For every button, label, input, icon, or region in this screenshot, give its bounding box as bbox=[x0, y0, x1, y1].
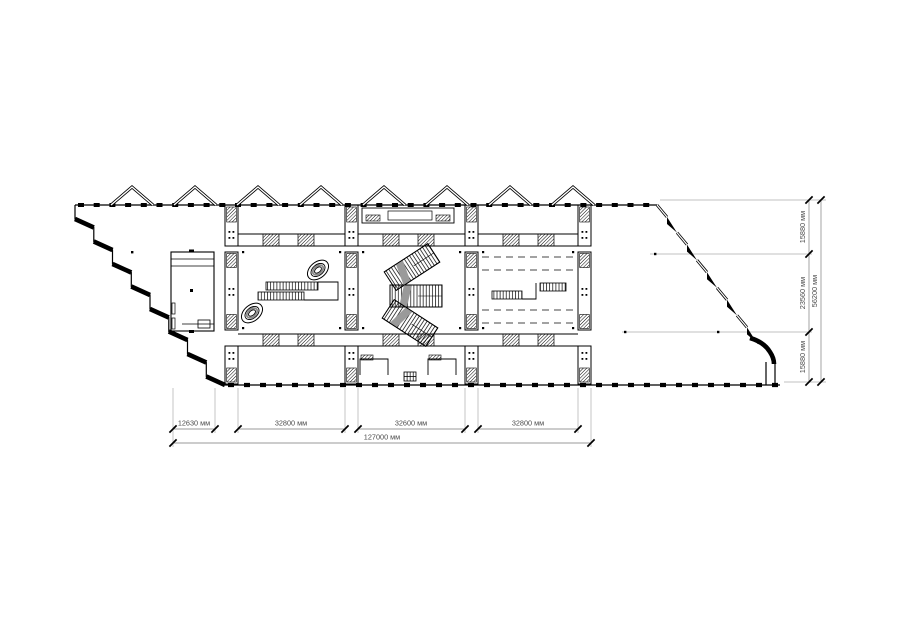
upper-gallery-wall bbox=[238, 234, 578, 246]
dim-bottom-4-label: 32800 мм bbox=[512, 419, 544, 428]
dim-bottom-3-label: 32600 мм bbox=[395, 419, 427, 428]
drawing-canvas: 12630 мм 32800 мм 32600 мм 32800 мм 1270… bbox=[0, 0, 900, 633]
dim-bottom-2-label: 32800 мм bbox=[275, 419, 307, 428]
escalator-upper bbox=[384, 244, 440, 291]
dim-bottom-1-label: 12630 мм bbox=[178, 419, 210, 428]
dim-right-total-label: 56200 мм bbox=[810, 275, 819, 307]
floor-plan-svg: 12630 мм 32800 мм 32600 мм 32800 мм 1270… bbox=[0, 0, 900, 633]
equipment-platform bbox=[362, 208, 454, 223]
sawtooth-roof bbox=[111, 187, 594, 205]
dimension-bottom-total: 127000 мм bbox=[169, 433, 594, 447]
spiral-ramp-2 bbox=[238, 299, 267, 327]
stair-left-bay bbox=[258, 282, 338, 300]
technical-room bbox=[171, 250, 214, 334]
spiral-ramp-1 bbox=[304, 256, 333, 284]
dimension-right-total: 56200 мм bbox=[810, 196, 825, 385]
lower-gallery-wall bbox=[238, 334, 578, 346]
floor-grate-symbol bbox=[404, 372, 416, 381]
dim-right-3-label: 15880 мм bbox=[798, 341, 807, 373]
right-stepped-wall bbox=[657, 205, 775, 385]
dimension-bottom-chain: 12630 мм 32800 мм 32600 мм 32800 мм bbox=[169, 419, 581, 433]
dim-bottom-total-label: 127000 мм bbox=[364, 433, 400, 442]
stair-right-bay bbox=[492, 283, 566, 299]
dim-right-2-label: 23560 мм bbox=[798, 277, 807, 309]
dim-right-1-label: 15880 мм bbox=[798, 211, 807, 243]
